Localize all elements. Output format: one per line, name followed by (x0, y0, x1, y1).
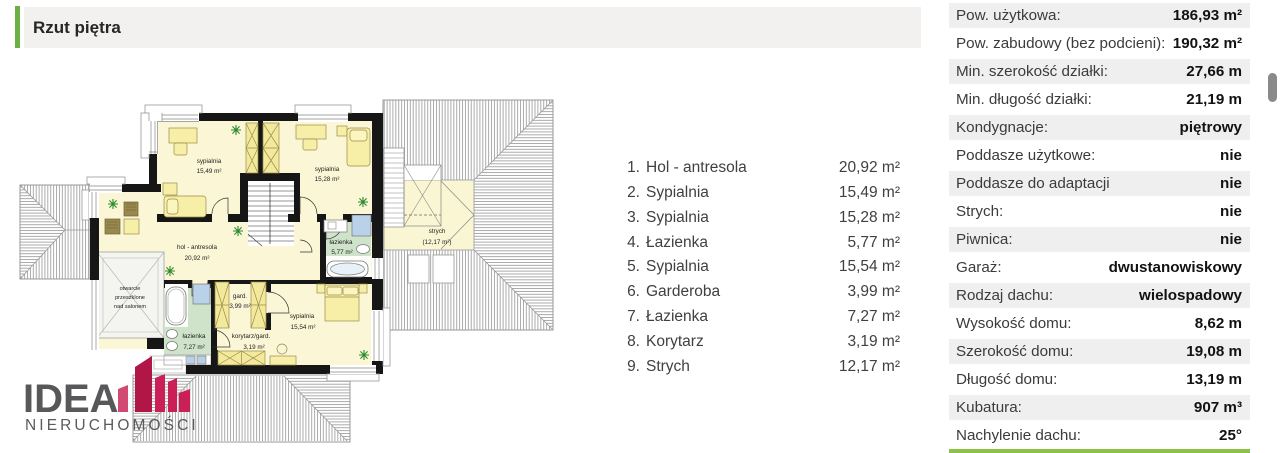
svg-text:strych: strych (429, 228, 446, 235)
svg-text:otwarcie: otwarcie (120, 286, 141, 292)
svg-text:15,49 m²: 15,49 m² (197, 168, 222, 175)
svg-text:nad salonem: nad salonem (114, 304, 146, 310)
svg-text:15,28 m²: 15,28 m² (315, 176, 340, 183)
svg-text:łazienka: łazienka (329, 239, 353, 246)
svg-text:IDEA: IDEA (23, 377, 119, 421)
svg-text:hol - antresola: hol - antresola (177, 244, 217, 251)
svg-text:gard.: gard. (233, 293, 248, 300)
svg-text:(12,17 m²): (12,17 m²) (422, 239, 451, 246)
svg-text:sypialnia: sypialnia (315, 166, 340, 173)
svg-text:3,19 m²: 3,19 m² (243, 344, 264, 351)
svg-text:NIERUCHOMOŚCI: NIERUCHOMOŚCI (25, 416, 199, 434)
svg-text:przeszklone: przeszklone (115, 295, 145, 301)
svg-text:15,54 m²: 15,54 m² (291, 324, 316, 331)
svg-text:sypialnia: sypialnia (290, 313, 315, 320)
svg-text:5,77 m²: 5,77 m² (331, 249, 352, 256)
svg-text:korytarz/gard.: korytarz/gard. (232, 333, 271, 340)
svg-text:3,99 m²: 3,99 m² (229, 303, 250, 310)
svg-text:sypialnia: sypialnia (197, 158, 222, 165)
svg-text:20,92 m²: 20,92 m² (185, 255, 210, 262)
svg-text:7,27 m²: 7,27 m² (183, 344, 204, 351)
svg-text:łazienka: łazienka (182, 333, 206, 340)
